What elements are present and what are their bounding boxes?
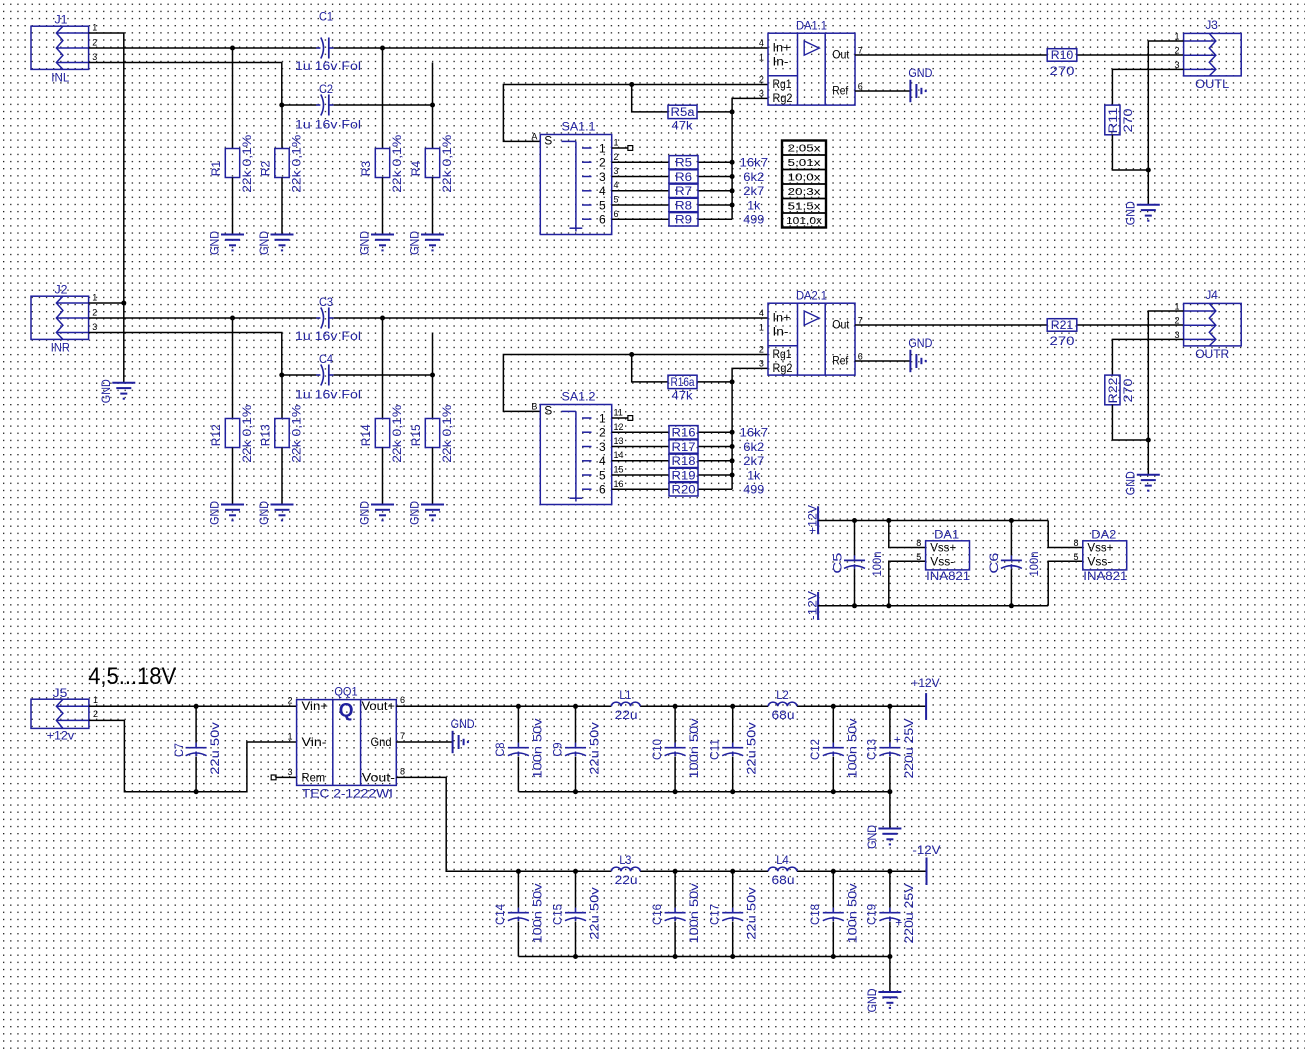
svg-text:R1: R1 (209, 161, 223, 177)
svg-text:GND: GND (408, 501, 422, 525)
svg-text:C11: C11 (708, 739, 722, 760)
svg-text:R15: R15 (409, 424, 423, 446)
svg-text:A: A (531, 131, 537, 141)
svg-text:5: 5 (1073, 552, 1078, 562)
svg-text:C16: C16 (650, 904, 664, 925)
svg-text:13: 13 (614, 436, 624, 446)
svg-text:C18: C18 (808, 904, 822, 925)
svg-text:Q: Q (339, 701, 354, 722)
svg-text:GND: GND (908, 66, 932, 80)
svg-text:Vout-: Vout- (362, 770, 395, 784)
svg-text:270: 270 (1050, 64, 1075, 78)
svg-text:C1: C1 (319, 10, 333, 24)
svg-text:10,0x: 10,0x (788, 172, 822, 184)
svg-text:C8: C8 (493, 742, 507, 756)
svg-text:22u 50v: 22u 50v (745, 887, 759, 940)
svg-text:101,0x: 101,0x (786, 215, 823, 227)
svg-text:GND: GND (208, 231, 222, 255)
svg-text:1u 16v Fol: 1u 16v Fol (295, 387, 361, 401)
svg-text:1: 1 (1174, 32, 1179, 42)
svg-text:In+: In+ (773, 41, 791, 55)
svg-text:6: 6 (858, 352, 863, 362)
svg-text:INA821: INA821 (1083, 569, 1127, 583)
svg-text:2,05x: 2,05x (788, 143, 822, 155)
svg-text:22k 0,1%: 22k 0,1% (440, 134, 454, 192)
svg-text:R12: R12 (209, 424, 223, 446)
svg-text:GND: GND (99, 379, 113, 403)
svg-text:S: S (544, 403, 552, 417)
svg-text:GND: GND (358, 231, 372, 255)
svg-text:+12V: +12V (911, 676, 939, 690)
svg-text:270: 270 (1050, 334, 1075, 348)
svg-text:100n 50v: 100n 50v (687, 884, 701, 944)
svg-text:22u 50v: 22u 50v (588, 887, 602, 940)
svg-text:4: 4 (614, 180, 619, 190)
svg-text:499: 499 (743, 213, 764, 227)
svg-text:Vss-: Vss- (930, 554, 954, 568)
svg-text:DA2.1: DA2.1 (796, 289, 827, 303)
svg-text:47k: 47k (672, 119, 694, 133)
svg-text:270: 270 (1121, 108, 1135, 132)
svg-text:11: 11 (614, 408, 623, 418)
svg-text:100n 50v: 100n 50v (845, 719, 859, 779)
svg-text:R5: R5 (675, 156, 692, 170)
svg-text:Vss+: Vss+ (1087, 541, 1113, 555)
svg-text:-12V: -12V (912, 843, 940, 857)
svg-text:B: B (531, 401, 537, 411)
svg-text:3: 3 (1174, 330, 1179, 340)
svg-text:R14: R14 (359, 424, 373, 446)
svg-text:C17: C17 (708, 904, 722, 925)
svg-text:J2: J2 (55, 283, 68, 297)
svg-text:R6: R6 (675, 170, 692, 184)
svg-text:INR: INR (51, 341, 70, 355)
svg-text:R2: R2 (259, 161, 273, 177)
svg-text:22u 50v: 22u 50v (588, 722, 602, 775)
svg-text:14: 14 (614, 450, 624, 460)
svg-text:100n 50v: 100n 50v (530, 719, 544, 779)
svg-text:16k7: 16k7 (740, 426, 769, 440)
svg-text:6: 6 (599, 213, 606, 227)
svg-text:22k 0,1%: 22k 0,1% (390, 404, 404, 462)
svg-text:C9: C9 (550, 742, 564, 756)
svg-text:100n 50v: 100n 50v (845, 884, 859, 944)
svg-text:L2: L2 (776, 688, 789, 702)
svg-text:DA2: DA2 (1091, 527, 1116, 541)
svg-text:C13: C13 (865, 739, 879, 760)
svg-text:GND: GND (1123, 471, 1137, 495)
svg-text:16k7: 16k7 (740, 156, 769, 170)
svg-text:DA1.1: DA1.1 (796, 19, 827, 33)
svg-text:C6: C6 (987, 552, 1001, 573)
svg-text:3: 3 (759, 89, 764, 99)
svg-text:6k2: 6k2 (743, 440, 764, 454)
svg-text:1: 1 (93, 695, 98, 705)
svg-text:R18: R18 (672, 454, 696, 468)
svg-text:5: 5 (916, 552, 921, 562)
svg-text:3: 3 (599, 440, 606, 454)
svg-text:INA821: INA821 (926, 569, 970, 583)
svg-text:2k7: 2k7 (743, 184, 764, 198)
svg-text:+12V: +12V (806, 505, 820, 534)
svg-text:8: 8 (916, 538, 921, 548)
svg-text:R13: R13 (259, 424, 273, 446)
svg-text:C7: C7 (172, 743, 186, 757)
svg-text:1: 1 (759, 323, 764, 333)
svg-text:8: 8 (1073, 538, 1078, 548)
svg-text:GND: GND (865, 825, 879, 849)
svg-text:J1: J1 (55, 13, 68, 27)
svg-text:R16a: R16a (671, 375, 695, 389)
svg-text:20,3x: 20,3x (788, 186, 822, 198)
svg-text:2: 2 (759, 75, 764, 85)
svg-text:5,01x: 5,01x (788, 157, 822, 169)
svg-text:C4: C4 (319, 352, 333, 366)
svg-text:1: 1 (599, 141, 606, 155)
svg-text:3: 3 (287, 767, 292, 777)
svg-text:2: 2 (599, 426, 606, 440)
svg-text:4,5...18V: 4,5...18V (88, 663, 176, 690)
svg-text:R20: R20 (672, 483, 696, 497)
svg-text:Vss-: Vss- (1087, 554, 1111, 568)
svg-text:100n 50v: 100n 50v (530, 884, 544, 944)
svg-text:Rg1: Rg1 (773, 77, 792, 91)
svg-text:7: 7 (858, 316, 863, 326)
svg-text:L4: L4 (776, 853, 789, 867)
svg-text:1k: 1k (747, 468, 761, 482)
svg-text:1u 16v Fol: 1u 16v Fol (295, 59, 361, 73)
svg-text:12: 12 (614, 422, 624, 432)
svg-text:J4: J4 (1205, 288, 1218, 302)
svg-text:2: 2 (759, 345, 764, 355)
svg-text:R5a: R5a (671, 105, 695, 119)
svg-text:22u: 22u (615, 708, 638, 722)
svg-text:+: + (895, 915, 902, 929)
svg-text:In-: In- (773, 55, 789, 69)
svg-text:J3: J3 (1205, 18, 1218, 32)
svg-text:270: 270 (1121, 378, 1135, 402)
svg-text:1u 16v Fol: 1u 16v Fol (295, 329, 361, 343)
svg-text:3: 3 (759, 359, 764, 369)
svg-text:C14: C14 (493, 904, 507, 925)
svg-text:22k 0,1%: 22k 0,1% (390, 134, 404, 192)
svg-text:100n: 100n (870, 552, 884, 577)
svg-text:2: 2 (92, 38, 97, 48)
svg-text:+12v: +12v (47, 729, 75, 743)
svg-text:6: 6 (599, 483, 606, 497)
svg-text:GND: GND (451, 717, 475, 731)
svg-text:5: 5 (599, 198, 606, 212)
svg-text:GND: GND (358, 501, 372, 525)
svg-text:22k 0,1%: 22k 0,1% (240, 134, 254, 192)
svg-text:Rem: Rem (302, 770, 326, 784)
svg-text:22k 0,1%: 22k 0,1% (290, 134, 304, 192)
svg-text:R22: R22 (1106, 377, 1120, 403)
svg-text:Rg2: Rg2 (773, 361, 793, 375)
svg-text:QQ1: QQ1 (334, 684, 358, 698)
svg-text:Rg2: Rg2 (773, 91, 793, 105)
svg-text:R17: R17 (672, 440, 696, 454)
svg-text:2: 2 (599, 156, 606, 170)
svg-text:SA1.1: SA1.1 (562, 120, 596, 134)
svg-text:6: 6 (858, 82, 863, 92)
svg-text:GND: GND (1123, 201, 1137, 225)
svg-text:1: 1 (599, 411, 606, 425)
svg-text:R19: R19 (672, 468, 696, 482)
svg-text:22u 50v: 22u 50v (745, 722, 759, 775)
svg-text:68u: 68u (772, 708, 795, 722)
svg-text:3: 3 (599, 170, 606, 184)
svg-text:SA1.2: SA1.2 (562, 390, 596, 404)
svg-text:2: 2 (92, 308, 97, 318)
svg-text:5: 5 (614, 195, 619, 205)
svg-text:C3: C3 (319, 295, 333, 309)
svg-text:Out: Out (832, 48, 850, 62)
svg-text:R8: R8 (675, 198, 692, 212)
svg-text:J5: J5 (53, 686, 68, 700)
svg-text:L1: L1 (619, 688, 631, 702)
svg-text:GND: GND (257, 501, 271, 525)
svg-text:1k: 1k (747, 198, 761, 212)
svg-text:GND: GND (908, 336, 932, 350)
svg-text:OUTR: OUTR (1195, 347, 1229, 361)
svg-text:INL: INL (51, 71, 69, 85)
svg-text:DA1: DA1 (934, 527, 959, 541)
svg-text:2: 2 (287, 695, 292, 705)
svg-text:1u 16v Fol: 1u 16v Fol (295, 117, 361, 131)
svg-text:1: 1 (92, 293, 97, 303)
svg-text:R21: R21 (1051, 318, 1074, 332)
svg-text:5: 5 (599, 468, 606, 482)
svg-text:C10: C10 (650, 739, 664, 760)
svg-text:Ref: Ref (832, 354, 849, 368)
svg-text:C12: C12 (808, 739, 822, 760)
svg-text:R9: R9 (675, 213, 692, 227)
svg-text:2: 2 (93, 709, 98, 719)
svg-text:4: 4 (599, 184, 606, 198)
svg-text:Ref: Ref (832, 84, 849, 98)
svg-text:3: 3 (1174, 60, 1179, 70)
svg-text:220u 25V: 220u 25V (902, 719, 916, 779)
svg-text:C2: C2 (319, 82, 333, 96)
svg-text:100n 50v: 100n 50v (687, 719, 701, 779)
svg-text:4: 4 (599, 454, 606, 468)
svg-text:6k2: 6k2 (743, 170, 764, 184)
svg-text:L3: L3 (619, 853, 631, 867)
svg-text:16: 16 (614, 479, 624, 489)
svg-text:C5: C5 (830, 552, 844, 573)
svg-text:22u 50v: 22u 50v (208, 722, 222, 775)
svg-text:Vin+: Vin+ (302, 699, 329, 713)
svg-text:In+: In+ (773, 311, 791, 325)
svg-text:TEC 2-1222WI: TEC 2-1222WI (302, 786, 393, 800)
svg-text:GND: GND (208, 501, 222, 525)
svg-text:100n: 100n (1027, 552, 1041, 577)
svg-text:S: S (544, 133, 552, 147)
svg-text:22u: 22u (615, 873, 638, 887)
svg-text:3: 3 (92, 52, 97, 62)
svg-text:Vout+: Vout+ (362, 699, 396, 713)
svg-text:68u: 68u (772, 873, 795, 887)
svg-text:Vss+: Vss+ (930, 541, 956, 555)
svg-text:22k 0,1%: 22k 0,1% (240, 404, 254, 462)
svg-text:47k: 47k (672, 389, 694, 403)
svg-text:499: 499 (743, 483, 764, 497)
svg-text:R10: R10 (1051, 48, 1074, 62)
svg-text:7: 7 (400, 731, 405, 741)
svg-text:+: + (894, 732, 901, 746)
svg-text:Gnd: Gnd (371, 735, 392, 749)
svg-text:2k7: 2k7 (743, 454, 764, 468)
svg-text:C15: C15 (550, 904, 564, 925)
svg-text:1: 1 (614, 138, 619, 148)
svg-text:C19: C19 (865, 904, 879, 925)
svg-text:4: 4 (759, 308, 764, 318)
svg-text:1: 1 (287, 732, 292, 742)
svg-text:8: 8 (400, 767, 405, 777)
svg-text:4: 4 (759, 38, 764, 48)
svg-text:1: 1 (92, 23, 97, 33)
svg-text:2: 2 (1174, 316, 1179, 326)
svg-text:Rg1: Rg1 (773, 347, 792, 361)
svg-text:In-: In- (773, 325, 789, 339)
svg-text:6: 6 (400, 695, 405, 705)
svg-text:OUTL: OUTL (1195, 77, 1229, 91)
svg-text:220u 25V: 220u 25V (902, 884, 916, 944)
svg-text:R7: R7 (675, 184, 692, 198)
svg-text:7: 7 (858, 46, 863, 56)
svg-text:R4: R4 (409, 161, 423, 177)
svg-text:1: 1 (1174, 302, 1179, 312)
svg-text:1: 1 (759, 53, 764, 63)
svg-text:R16: R16 (672, 426, 696, 440)
svg-text:6: 6 (614, 209, 619, 219)
svg-text:Vin-: Vin- (302, 735, 327, 749)
svg-text:22k 0,1%: 22k 0,1% (290, 404, 304, 462)
svg-text:3: 3 (92, 322, 97, 332)
svg-text:-12V: -12V (806, 591, 820, 620)
svg-text:2: 2 (1174, 46, 1179, 56)
svg-text:R3: R3 (359, 161, 373, 177)
svg-text:15: 15 (614, 465, 624, 475)
svg-text:GND: GND (865, 988, 879, 1012)
svg-text:GND: GND (257, 231, 271, 255)
svg-text:51,5x: 51,5x (788, 201, 822, 213)
svg-text:2: 2 (614, 152, 619, 162)
svg-text:GND: GND (408, 231, 422, 255)
svg-text:3: 3 (614, 166, 619, 176)
svg-text:Out: Out (832, 318, 850, 332)
svg-text:22k 0,1%: 22k 0,1% (440, 404, 454, 462)
svg-text:R11: R11 (1106, 107, 1120, 133)
